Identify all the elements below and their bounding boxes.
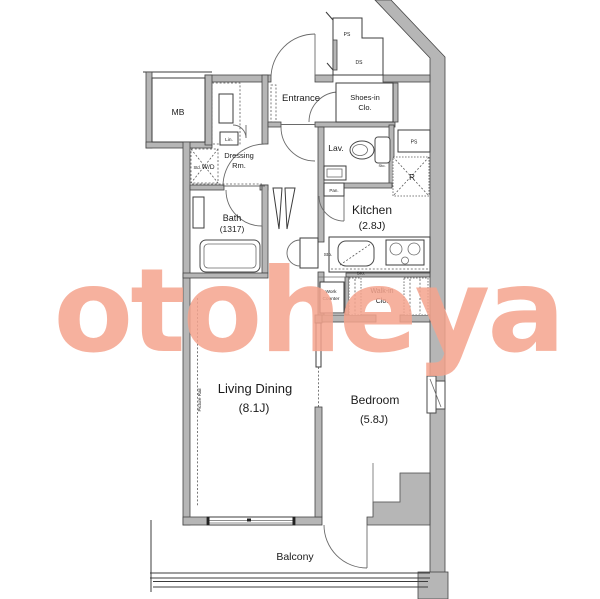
floorplan-page: Entrance Shoes-in Clo. Lav. Kitchen (2.8… (0, 0, 600, 599)
label-ps-side: PS (411, 140, 418, 146)
label-fridge: R (409, 173, 415, 182)
label-picture-rail: Picture Rail (197, 388, 202, 411)
room-label-kitchen: Kitchen (352, 203, 392, 217)
label-linen: Lin. (225, 137, 233, 143)
room-label-entrance: Entrance (282, 93, 320, 104)
entrance-step (271, 85, 276, 122)
entrance-door (271, 34, 315, 78)
watermark-otoheya: otoheya (54, 244, 563, 379)
label-pantry: Pan. (329, 188, 338, 193)
svg-text:(2.8J): (2.8J) (359, 220, 386, 232)
label-ds: DS (356, 60, 364, 66)
balcony-door (324, 525, 367, 568)
bedroom-window (427, 376, 445, 413)
floor-plan: Entrance Shoes-in Clo. Lav. Kitchen (2.8… (0, 0, 600, 599)
vanity-counter (324, 166, 346, 180)
living-window (207, 517, 295, 525)
room-label-balcony: Balcony (276, 551, 314, 563)
bath-niche (193, 197, 204, 228)
svg-text:Clo.: Clo. (358, 103, 371, 112)
wall-balcony-notch (418, 572, 448, 599)
wall-step-southeast (367, 473, 430, 525)
svg-text:(8.1J): (8.1J) (239, 401, 270, 415)
room-label-dressing: Dressing (224, 151, 254, 160)
label-washer-dryer: Std.W/D (193, 164, 214, 171)
pipe-shaft (326, 12, 383, 75)
room-label-shoes-closet: Shoes-in (350, 93, 380, 102)
toilet (350, 137, 390, 163)
svg-text:(5.8J): (5.8J) (360, 414, 388, 426)
hall-door (281, 125, 315, 162)
svg-text:(1317): (1317) (220, 224, 245, 234)
svg-text:Rm.: Rm. (232, 161, 246, 170)
room-label-bedroom: Bedroom (351, 393, 400, 407)
room-label-bath: Bath (223, 213, 242, 223)
living-double-doors (273, 188, 295, 229)
label-meter-box: MB (172, 107, 185, 117)
room-label-living: Living Dining (218, 381, 292, 396)
label-storage-lav: Sto. (378, 163, 385, 168)
room-label-lavatory: Lav. (328, 143, 343, 153)
label-ps-top: PS (344, 32, 351, 38)
